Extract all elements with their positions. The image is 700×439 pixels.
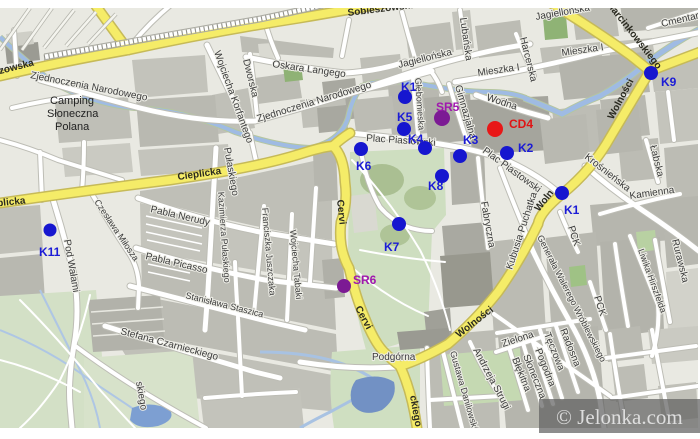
svg-text:SR5: SR5 [436, 100, 460, 114]
svg-text:K8: K8 [428, 179, 444, 193]
svg-text:K2: K2 [518, 141, 534, 155]
svg-text:K1: K1 [401, 80, 417, 94]
svg-text:K3: K3 [463, 133, 479, 147]
svg-text:Polana: Polana [55, 121, 90, 133]
svg-text:Camping: Camping [50, 95, 94, 107]
svg-text:K5: K5 [397, 110, 413, 124]
svg-text:K4: K4 [408, 132, 424, 146]
svg-text:Słoneczna: Słoneczna [47, 108, 99, 120]
svg-text:CD4: CD4 [509, 117, 533, 131]
svg-text:K11: K11 [39, 245, 61, 259]
svg-text:K1: K1 [564, 203, 580, 217]
svg-text:K9: K9 [661, 75, 677, 89]
svg-text:K6: K6 [356, 159, 372, 173]
svg-text:© Jelonka.com: © Jelonka.com [556, 405, 683, 429]
svg-text:SR6: SR6 [353, 273, 377, 287]
svg-text:K7: K7 [384, 240, 400, 254]
svg-text:Podgórna: Podgórna [372, 352, 416, 363]
